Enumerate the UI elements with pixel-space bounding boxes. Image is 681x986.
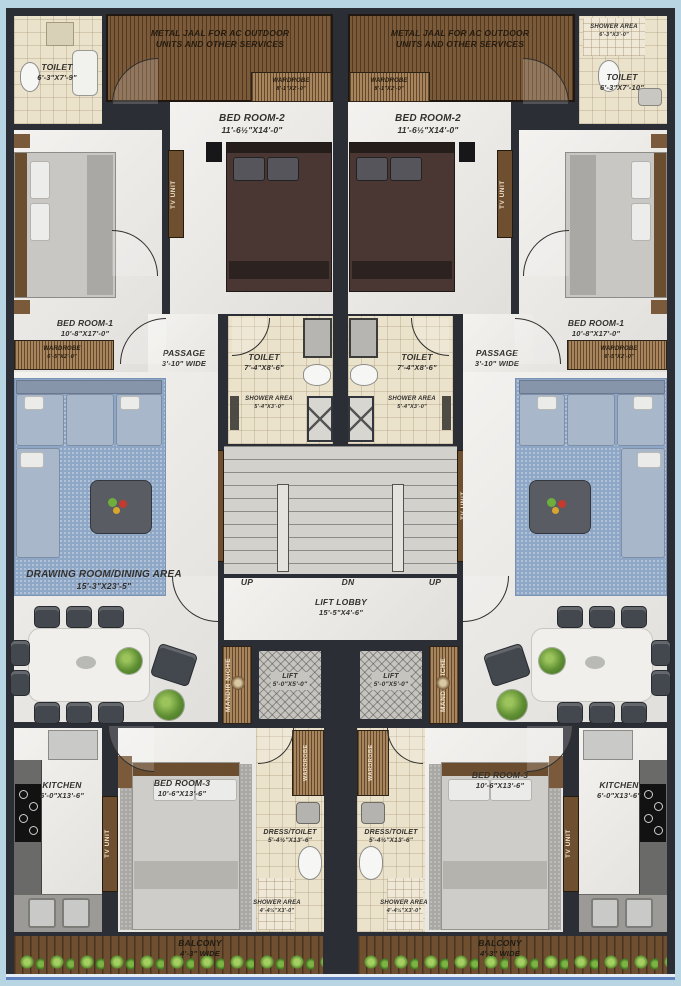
label-wardrobe-b2-left: WARDROBE8'-1"X2'-0"	[272, 78, 309, 92]
toilet-mid-right-vanity	[442, 396, 451, 430]
label-metal-jaal-right: METAL JAAL FOR AC OUTDOORUNITS AND OTHER…	[391, 28, 529, 50]
kitchen-right-sink	[625, 898, 653, 928]
dining-chair	[10, 670, 30, 696]
dining-chair	[10, 640, 30, 666]
label-shower-top-right: SHOWER AREA6'-3"X3'-0"	[590, 24, 638, 38]
toilet-mid-left-wc-icon	[303, 364, 331, 386]
label-toilet-top-left: TOILET6'-3"X7'-9"	[37, 62, 77, 83]
kitchen-left-sink	[28, 898, 56, 928]
stair-rail-left	[277, 484, 289, 572]
label-bedroom1-left: BED ROOM-110'-8"X17'-0"	[57, 318, 113, 339]
dining-chair	[98, 606, 124, 628]
dining-dish	[76, 656, 96, 669]
label-bedroom3-left: BED ROOM-310'-6"X13'-6"	[154, 778, 210, 799]
label-shower-mid-right: SHOWER AREA5'-4"X3'-0"	[388, 396, 436, 410]
floor-plant-left	[154, 690, 184, 720]
drawing-left-sofa-back	[16, 380, 162, 394]
bed-runner	[352, 261, 452, 279]
kitchen-right-fridge	[583, 730, 633, 760]
headboard	[350, 143, 454, 153]
staircase	[224, 446, 457, 574]
kitchen-right-stove	[640, 784, 666, 842]
label-up-right: UP	[429, 577, 441, 588]
label-bedroom1-right: BED ROOM-110'-8"X17'-0"	[568, 318, 624, 339]
label-dn: DN	[342, 577, 355, 588]
label-kitchen-left: KITCHEN6'-0"X13'-6"	[40, 780, 84, 801]
dining-chair	[621, 702, 647, 724]
label-shower-mid-left: SHOWER AREA5'-4"X3'-0"	[245, 396, 293, 410]
pillow	[390, 157, 422, 181]
dining-chair	[621, 606, 647, 628]
label-shower-bottom-left: SHOWER AREA4'-4½"X3'-0"	[253, 900, 301, 914]
sofa-pillow	[637, 452, 661, 468]
service-duct-right	[348, 396, 374, 442]
label-bedroom2-right: BED ROOM-211'-6½"X14'-0"	[395, 112, 461, 136]
drawing-right-sofa-back	[519, 380, 665, 394]
bedroom1-left-side-table	[14, 134, 30, 148]
headboard	[15, 153, 27, 297]
bedroom2-left-side-table	[206, 142, 222, 162]
floor-plant-right	[497, 690, 527, 720]
label-wardrobe-b1-left: WARDROBE6'-5"X2'-0"	[43, 346, 80, 360]
label-wardrobe-dress-right: WARDROBE	[369, 736, 375, 790]
label-balcony-right: BALCONY4'-3" WIDE	[478, 938, 521, 959]
dining-chair	[557, 606, 583, 628]
label-drawing-room: DRAWING ROOM/DINING AREA15'-3"X23'-5"	[26, 568, 182, 592]
label-lift-lobby: LIFT LOBBY15'-5"X4'-6"	[315, 597, 367, 618]
sofa-pillow	[537, 396, 557, 410]
dress-left-basin	[296, 802, 320, 824]
pillow	[267, 157, 299, 181]
dress-right-basin	[361, 802, 385, 824]
label-toilet-top-right: TOILET6'-3"X7'-10"	[600, 72, 644, 93]
headboard	[654, 153, 666, 297]
balcony-railing-blue	[6, 977, 675, 980]
bed-runner	[229, 261, 329, 279]
blanket-fold	[87, 155, 113, 295]
dining-chair	[651, 670, 671, 696]
pillow	[356, 157, 388, 181]
toilet-mid-left-shower-cubicle	[303, 318, 332, 358]
stair-rail-right	[392, 484, 404, 572]
dining-chair	[557, 702, 583, 724]
dress-left-wc-icon	[298, 846, 322, 880]
bedroom2-left-bed	[226, 142, 332, 292]
label-bedroom3-right: BED ROOM-310'-6"X13'-6"	[472, 770, 528, 791]
dining-chair	[589, 606, 615, 628]
fruit-bowl	[119, 500, 127, 508]
bedroom1-left-bed	[14, 152, 116, 298]
fruit-bowl	[558, 500, 566, 508]
fruit-bowl	[108, 498, 117, 507]
blanket-fold	[134, 861, 238, 889]
bedroom1-left-side-table	[14, 300, 30, 314]
dining-chair	[651, 640, 671, 666]
mandir-flower	[436, 676, 450, 690]
dining-plant-right	[539, 648, 565, 674]
blanket-fold	[570, 155, 596, 295]
label-lift-left: LIFT5'-0"X5'-0"	[271, 672, 310, 690]
sofa-pillow	[633, 396, 653, 410]
balcony-left-planter	[14, 950, 323, 974]
kitchen-right-sink	[591, 898, 619, 928]
pillow	[233, 157, 265, 181]
sofa-pillow	[20, 452, 44, 468]
label-shower-bottom-right: SHOWER AREA4'-4½"X3'-0"	[380, 900, 428, 914]
dining-chair	[34, 702, 60, 724]
label-metal-jaal-left: METAL JAAL FOR AC OUTDOORUNITS AND OTHER…	[151, 28, 289, 50]
kitchen-left-fridge	[48, 730, 98, 760]
dining-dish	[585, 656, 605, 669]
blanket-fold	[443, 861, 547, 889]
label-balcony-left: BALCONY4'-3" WIDE	[178, 938, 221, 959]
pillow	[631, 161, 651, 199]
dining-chair	[66, 606, 92, 628]
label-tv-unit-bedroom2-right: TV UNIT	[500, 168, 507, 222]
label-toilet-mid-left: TOILET7'-4"X8'-6"	[244, 352, 284, 373]
pillow	[30, 161, 50, 199]
label-dress-left: DRESS/TOILET5'-4½"X13'-6"	[263, 828, 316, 846]
label-tv-unit-bedroom2-left: TV UNIT	[171, 168, 178, 222]
label-wardrobe-dress-left: WARDROBE	[304, 736, 310, 790]
service-duct-left	[307, 396, 333, 442]
fruit-bowl	[552, 507, 559, 514]
label-wardrobe-b2-right: WARDROBE8'-1"X2'-0"	[370, 78, 407, 92]
label-tv-unit-bedroom3-left: TV UNIT	[105, 816, 112, 872]
label-dress-right: DRESS/TOILET5'-4½"X13'-6"	[364, 828, 417, 846]
sofa-pillow	[120, 396, 140, 410]
fruit-bowl	[113, 507, 120, 514]
bedroom2-right-bed	[349, 142, 455, 292]
fruit-bowl	[547, 498, 556, 507]
mandir-flower	[231, 676, 245, 690]
dress-right-wc-icon	[359, 846, 383, 880]
label-bedroom2-left: BED ROOM-211'-6½"X14'-0"	[219, 112, 285, 136]
sofa-cushion	[66, 394, 114, 446]
bedroom1-right-side-table	[651, 300, 667, 314]
pillow	[631, 203, 651, 241]
sofa-pillow	[24, 396, 44, 410]
headboard	[227, 143, 331, 153]
toilet-mid-right-shower-cubicle	[349, 318, 378, 358]
bedroom1-right-bed	[565, 152, 667, 298]
bedroom2-right-side-table	[459, 142, 475, 162]
label-kitchen-right: KITCHEN6'-0"X13'-6"	[597, 780, 641, 801]
dining-chair	[66, 702, 92, 724]
dining-plant-left	[116, 648, 142, 674]
dining-chair	[34, 606, 60, 628]
label-tv-unit-bedroom3-right: TV UNIT	[566, 816, 573, 872]
label-passage-right: PASSAGE3'-10" WIDE	[475, 348, 519, 369]
dining-chair	[589, 702, 615, 724]
toilet-mid-left-vanity	[230, 396, 239, 430]
kitchen-left-sink	[62, 898, 90, 928]
label-up-left: UP	[241, 577, 253, 588]
label-passage-left: PASSAGE3'-10" WIDE	[162, 348, 206, 369]
label-toilet-mid-right: TOILET7'-4"X8'-6"	[397, 352, 437, 373]
bedroom1-right-side-table	[651, 134, 667, 148]
kitchen-left-stove	[15, 784, 41, 842]
sofa-cushion	[567, 394, 615, 446]
dining-chair	[98, 702, 124, 724]
label-wardrobe-b1-right: WARDROBE6'-5"X2'-0"	[600, 346, 637, 360]
label-lift-right: LIFT5'-0"X5'-0"	[372, 672, 411, 690]
pillow	[30, 203, 50, 241]
toilet-mid-right-wc-icon	[350, 364, 378, 386]
toilet-top-left-niche	[46, 22, 74, 46]
